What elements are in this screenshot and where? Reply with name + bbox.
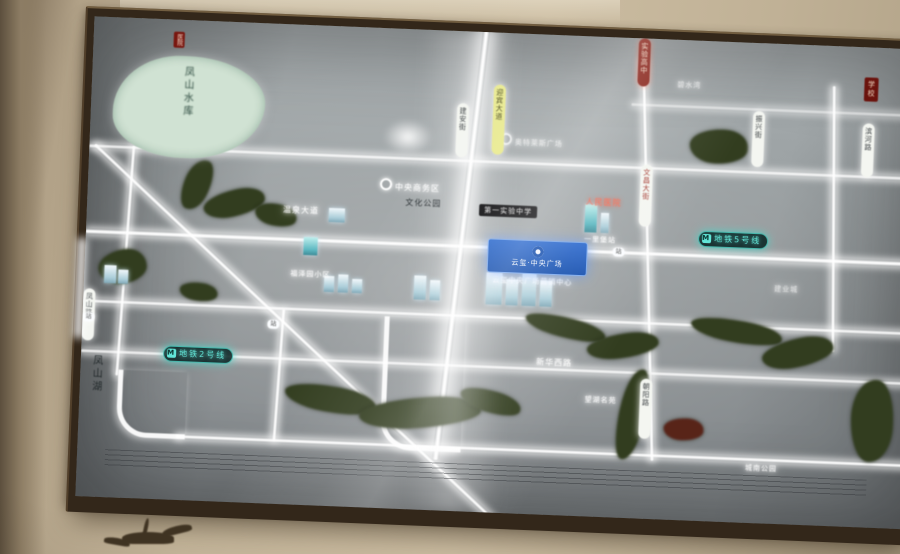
station-pill: 站 bbox=[267, 320, 279, 329]
river-segment bbox=[179, 280, 219, 303]
place-label: 建业城 bbox=[774, 284, 798, 295]
river-segment bbox=[689, 312, 783, 350]
place-label: 新华西路 bbox=[536, 356, 572, 368]
hill-label: 凤山湖 bbox=[87, 354, 104, 394]
building-icon bbox=[104, 265, 117, 283]
building-icon bbox=[352, 279, 363, 293]
map-lightbox-panel: 凤山水库 bbox=[66, 6, 900, 546]
road-capsule-red: 实验高中 bbox=[637, 38, 651, 86]
park-green-shape bbox=[689, 128, 748, 164]
plant-silhouette bbox=[92, 518, 212, 554]
metro-line-5-label: M 地铁5号线 bbox=[698, 231, 769, 250]
place-label-outlets: 奥特莱斯广场 bbox=[500, 133, 564, 150]
metro-line-2-text: 地铁2号线 bbox=[179, 348, 226, 361]
road-capsule: 振兴街 bbox=[751, 111, 765, 167]
building-icon-teal bbox=[303, 237, 318, 256]
metro-line-2-label: M 地铁2号线 bbox=[163, 345, 234, 364]
place-label-red: 人民医院 bbox=[585, 196, 621, 208]
metro-line-5-text: 地铁5号线 bbox=[714, 233, 761, 246]
place-label-dark: 文化公园 bbox=[405, 197, 441, 209]
place-label: 望湖名苑 bbox=[584, 394, 616, 405]
project-logo-icon bbox=[532, 246, 543, 257]
place-label-cbd: 中央商务区 bbox=[380, 178, 441, 194]
building-icon bbox=[118, 270, 129, 284]
poi-circle-icon bbox=[380, 178, 392, 190]
road-capsule: 滨河路 bbox=[861, 123, 875, 177]
metro-icon: M bbox=[702, 234, 711, 243]
reservoir-label: 凤山水库 bbox=[179, 66, 196, 119]
park-green-shape bbox=[849, 379, 894, 463]
road-corner-southwest bbox=[116, 370, 188, 440]
metro-icon: M bbox=[167, 349, 176, 358]
road-top-east bbox=[631, 102, 900, 119]
building-icon-teal bbox=[584, 204, 597, 232]
plant-leaf bbox=[161, 522, 192, 537]
road-capsule: 朝阳路 bbox=[638, 379, 652, 439]
building-icon bbox=[600, 213, 609, 233]
road-capsule-red-text: 文昌大街 bbox=[639, 164, 653, 226]
wall-corner-shadow bbox=[0, 0, 46, 554]
place-label: 一里堡站 bbox=[584, 234, 616, 245]
place-label: 温泉大道 bbox=[283, 204, 319, 216]
cbd-text: 中央商务区 bbox=[395, 183, 440, 194]
building-icon bbox=[338, 274, 349, 292]
building-icon bbox=[329, 208, 346, 223]
red-poi-box: 学校 bbox=[864, 77, 879, 102]
place-label: 碧水湾 bbox=[677, 80, 701, 91]
photo-of-illuminated-map: 凤山水库 bbox=[0, 0, 900, 554]
place-pill-black: 第一实验中学 bbox=[479, 204, 537, 218]
project-marker: 云玺·中央广场 bbox=[487, 238, 588, 276]
red-poi-pill: 医院 bbox=[173, 32, 185, 48]
station-pill: 站 bbox=[82, 312, 94, 321]
station-pill: 站 bbox=[612, 247, 624, 256]
project-marker-title: 云玺·中央广场 bbox=[511, 257, 563, 269]
road-vertical-5 bbox=[830, 86, 836, 352]
place-label: 城南公园 bbox=[745, 463, 777, 474]
road-capsule: 建安街 bbox=[455, 103, 469, 157]
reservoir-lake-shape: 凤山水库 bbox=[111, 53, 267, 161]
landmark-red-shape bbox=[663, 418, 704, 442]
place-label: 福泽园小区 bbox=[290, 268, 330, 280]
outlets-text: 奥特莱斯广场 bbox=[515, 138, 563, 148]
illuminated-city-map: 凤山水库 bbox=[75, 16, 900, 529]
